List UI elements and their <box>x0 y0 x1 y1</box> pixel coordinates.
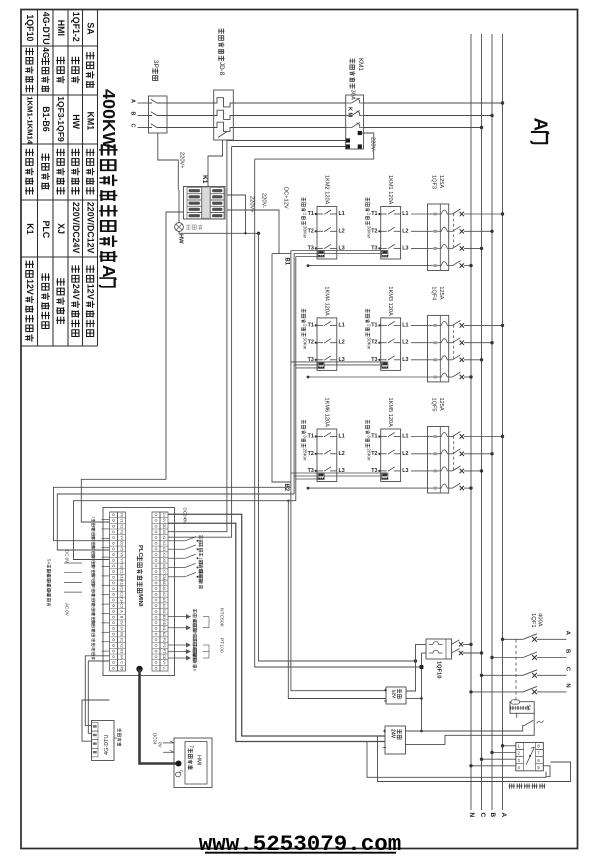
svg-text:220V+: 220V+ <box>179 152 185 169</box>
svg-text:5A: 5A <box>47 559 52 564</box>
svg-text:Y6: Y6 <box>120 552 124 556</box>
svg-text:A4: A4 <box>162 603 166 607</box>
svg-text:5A: 5A <box>47 588 52 593</box>
svg-text:X2: X2 <box>120 643 124 647</box>
svg-text:30Kw: 30Kw <box>301 337 307 349</box>
svg-text:A: A <box>130 99 136 103</box>
svg-text:L3: L3 <box>402 468 408 474</box>
svg-text:4G-DTU: 4G-DTU <box>104 734 110 755</box>
svg-text:28Kw: 28Kw <box>301 448 307 460</box>
svg-text:A2: A2 <box>162 592 166 596</box>
svg-text:L1: L1 <box>339 434 345 440</box>
svg-text:4G-DTU: 4G-DTU <box>41 12 51 45</box>
svg-text:PLC: PLC <box>41 221 51 239</box>
svg-text:T2: T2 <box>308 228 314 234</box>
svg-text:T1: T1 <box>308 434 314 440</box>
svg-text:24V: 24V <box>71 284 81 300</box>
svg-text:Y0: Y0 <box>120 513 124 517</box>
svg-text:28Kw: 28Kw <box>365 448 371 460</box>
svg-text:7: 7 <box>188 745 194 748</box>
svg-text:T2: T2 <box>371 451 377 457</box>
svg-text:T2: T2 <box>308 451 314 457</box>
svg-text:N: N <box>468 813 475 818</box>
svg-text:6: 6 <box>92 586 96 588</box>
svg-text:1KM1 120A: 1KM1 120A <box>387 175 393 205</box>
svg-text:1QF10: 1QF10 <box>436 661 442 678</box>
svg-text:5A: 5A <box>47 569 52 574</box>
svg-text:X4: X4 <box>120 655 124 659</box>
svg-text:A: A <box>500 813 507 818</box>
svg-text:1: 1 <box>301 213 307 216</box>
svg-text:3: 3 <box>92 610 96 612</box>
svg-text:125A: 125A <box>438 286 444 299</box>
svg-text:4G: 4G <box>41 47 51 58</box>
svg-text:C: C <box>479 813 486 818</box>
svg-text:X7: X7 <box>162 569 166 573</box>
svg-text:12V: 12V <box>86 284 96 300</box>
svg-text:PLC: PLC <box>137 545 143 558</box>
svg-text:2: 2 <box>365 324 371 327</box>
svg-text:0V: 0V <box>183 519 188 525</box>
svg-text:T2: T2 <box>308 340 314 346</box>
svg-text:1QF3-1QF9: 1QF3-1QF9 <box>56 96 66 142</box>
svg-text:1KM3 120A: 1KM3 120A <box>387 286 393 316</box>
svg-text:Y13: Y13 <box>120 585 124 591</box>
svg-text:GD: GD <box>162 524 166 530</box>
svg-text:30Kw: 30Kw <box>365 337 371 349</box>
svg-text:N1: N1 <box>162 626 166 631</box>
svg-text:2: 2 <box>92 601 96 603</box>
svg-text:X2: X2 <box>162 541 166 545</box>
svg-text:125A: 125A <box>438 175 444 188</box>
svg-text:P2: P2 <box>162 643 166 647</box>
svg-text:N2: N2 <box>162 632 166 637</box>
svg-text:KM1: KM1 <box>86 112 96 131</box>
svg-text:X1: X1 <box>120 638 124 642</box>
svg-text:K M: K M <box>347 107 353 118</box>
svg-text:A3: A3 <box>162 598 166 602</box>
svg-text:125A: 125A <box>438 398 444 411</box>
svg-text:2: 2 <box>92 526 96 528</box>
svg-text:L2: L2 <box>402 451 408 457</box>
svg-text:N: N <box>564 683 570 687</box>
svg-text:30Kw: 30Kw <box>365 226 371 238</box>
svg-text:1KM1-1KM14: 1KM1-1KM14 <box>25 96 34 145</box>
svg-text:L3: L3 <box>402 245 408 251</box>
svg-text:C: C <box>130 124 136 128</box>
svg-text:220V+: 220V+ <box>248 196 254 213</box>
svg-text:MINI: MINI <box>137 594 143 607</box>
svg-text:DC+12V: DC+12V <box>282 187 288 209</box>
svg-text:1KM4 120A: 1KM4 120A <box>323 286 329 316</box>
svg-text:L2: L2 <box>339 340 345 346</box>
svg-text:X4: X4 <box>162 552 166 556</box>
svg-text:1KM2 120A: 1KM2 120A <box>323 175 329 205</box>
svg-text:B1: B1 <box>162 609 166 613</box>
svg-text:AC 0V: AC 0V <box>65 603 70 616</box>
svg-text:T2: T2 <box>371 228 377 234</box>
svg-text:1QF10: 1QF10 <box>25 14 35 41</box>
svg-text:SA: SA <box>527 705 532 711</box>
svg-text:P1: P1 <box>162 638 166 642</box>
svg-text:s: s <box>193 669 198 671</box>
svg-text:1QF1: 1QF1 <box>530 613 536 628</box>
svg-text:A: A <box>531 118 552 132</box>
svg-text:Y14: Y14 <box>120 597 124 603</box>
svg-text:T1: T1 <box>371 434 377 440</box>
svg-text:1QF4: 1QF4 <box>431 286 437 300</box>
svg-text:AD: AD <box>162 581 166 586</box>
svg-text:B: B <box>489 813 496 818</box>
svg-text:B: B <box>564 649 570 653</box>
svg-text:X5: X5 <box>120 666 124 670</box>
svg-text:1KM6 120A: 1KM6 120A <box>323 398 329 428</box>
svg-text:24: 24 <box>120 626 124 630</box>
svg-text:5A: 5A <box>47 578 52 583</box>
svg-text:5: 5 <box>92 577 96 579</box>
svg-text:T1: T1 <box>308 322 314 328</box>
svg-text:30Kw: 30Kw <box>301 226 307 238</box>
svg-text:400KW: 400KW <box>99 89 119 149</box>
svg-text:T2: T2 <box>371 340 377 346</box>
svg-text:1: 1 <box>365 213 371 216</box>
svg-text:L1: L1 <box>339 322 345 328</box>
svg-text:B2: B2 <box>162 615 166 619</box>
svg-text:G: G <box>179 770 184 773</box>
svg-text:HMI: HMI <box>56 20 66 36</box>
svg-text:K1: K1 <box>201 175 208 184</box>
svg-text:K1: K1 <box>25 223 35 234</box>
svg-text:L1: L1 <box>339 211 345 217</box>
svg-text:GD: GD <box>162 654 166 660</box>
svg-text:X0: X0 <box>162 530 166 534</box>
svg-text:HW: HW <box>178 234 184 244</box>
svg-text:B1-B6: B1-B6 <box>41 106 51 132</box>
svg-text:C1: C1 <box>120 569 124 574</box>
svg-text:12V: 12V <box>25 279 35 295</box>
svg-text:XJ: XJ <box>56 223 66 234</box>
svg-text:GD: GD <box>162 620 166 626</box>
svg-text:3: 3 <box>301 435 307 438</box>
svg-text:L2: L2 <box>339 228 345 234</box>
svg-text:Y4: Y4 <box>120 535 124 539</box>
svg-text:L1: L1 <box>402 322 408 328</box>
svg-text:0V: 0V <box>120 620 124 625</box>
svg-text:T1: T1 <box>308 211 314 217</box>
svg-text:24: 24 <box>162 513 166 517</box>
svg-text:1KM5 120A: 1KM5 120A <box>387 398 393 428</box>
svg-text:C0: C0 <box>120 541 124 546</box>
svg-text:L2: L2 <box>339 451 345 457</box>
svg-text:1QF1-2: 1QF1-2 <box>71 12 81 42</box>
svg-text:C3: C3 <box>120 603 124 608</box>
svg-text:V+: V+ <box>162 660 166 665</box>
svg-text:3P: 3P <box>152 60 159 68</box>
svg-text:L3: L3 <box>402 357 408 363</box>
svg-text:B: B <box>130 112 136 116</box>
svg-text:X3: X3 <box>120 649 124 653</box>
svg-text:L1: L1 <box>402 434 408 440</box>
svg-text:Y2: Y2 <box>120 524 124 528</box>
svg-text:Y10: Y10 <box>120 563 124 569</box>
svg-text:T1: T1 <box>371 322 377 328</box>
svg-text:PT100: PT100 <box>219 638 225 653</box>
svg-text:HW: HW <box>71 114 81 129</box>
svg-text:NTC50K: NTC50K <box>219 608 225 628</box>
svg-text:1: 1 <box>92 592 96 594</box>
svg-text:C: C <box>120 661 124 664</box>
svg-text:X5: X5 <box>162 558 166 562</box>
svg-text:30A: 30A <box>350 90 356 100</box>
svg-text:2: 2 <box>301 324 307 327</box>
svg-text:L2: L2 <box>402 340 408 346</box>
svg-text:3: 3 <box>365 435 371 438</box>
svg-text:KM1: KM1 <box>357 58 364 71</box>
svg-text:24V: 24V <box>390 729 396 739</box>
svg-text:0V: 0V <box>158 742 163 748</box>
svg-text:DC 0V: DC 0V <box>65 550 70 563</box>
svg-text:T1: T1 <box>371 211 377 217</box>
svg-text:L1: L1 <box>402 211 408 217</box>
svg-text:X0: X0 <box>120 632 124 636</box>
svg-text:400A: 400A <box>537 613 543 627</box>
svg-text:X1: X1 <box>162 535 166 539</box>
svg-text:DC24: DC24 <box>153 733 158 745</box>
svg-text:1: 1 <box>92 516 96 518</box>
svg-text:Y3: Y3 <box>120 530 124 534</box>
svg-text:A: A <box>99 265 119 278</box>
svg-text:Y5: Y5 <box>120 547 124 551</box>
svg-text:Y1: Y1 <box>120 518 124 522</box>
svg-text:B1: B1 <box>284 258 290 266</box>
svg-text:JD-8: JD-8 <box>218 62 225 76</box>
svg-text:12V: 12V <box>391 690 397 700</box>
svg-text:CM: CM <box>162 575 166 581</box>
svg-text:A1: A1 <box>162 586 166 590</box>
svg-text:HMI: HMI <box>196 755 202 766</box>
svg-text:220V-: 220V- <box>260 193 266 208</box>
svg-text:1QF3: 1QF3 <box>431 175 437 189</box>
svg-text:220V-: 220V- <box>370 137 376 152</box>
svg-text:220V/DC24V: 220V/DC24V <box>71 202 81 254</box>
svg-text:SA: SA <box>86 22 96 35</box>
svg-text:X6: X6 <box>162 564 166 568</box>
svg-text:220V/DC12V: 220V/DC12V <box>86 202 96 254</box>
svg-text:1QF5: 1QF5 <box>431 398 437 412</box>
svg-text:X3: X3 <box>162 547 166 551</box>
svg-text:L2: L2 <box>402 228 408 234</box>
